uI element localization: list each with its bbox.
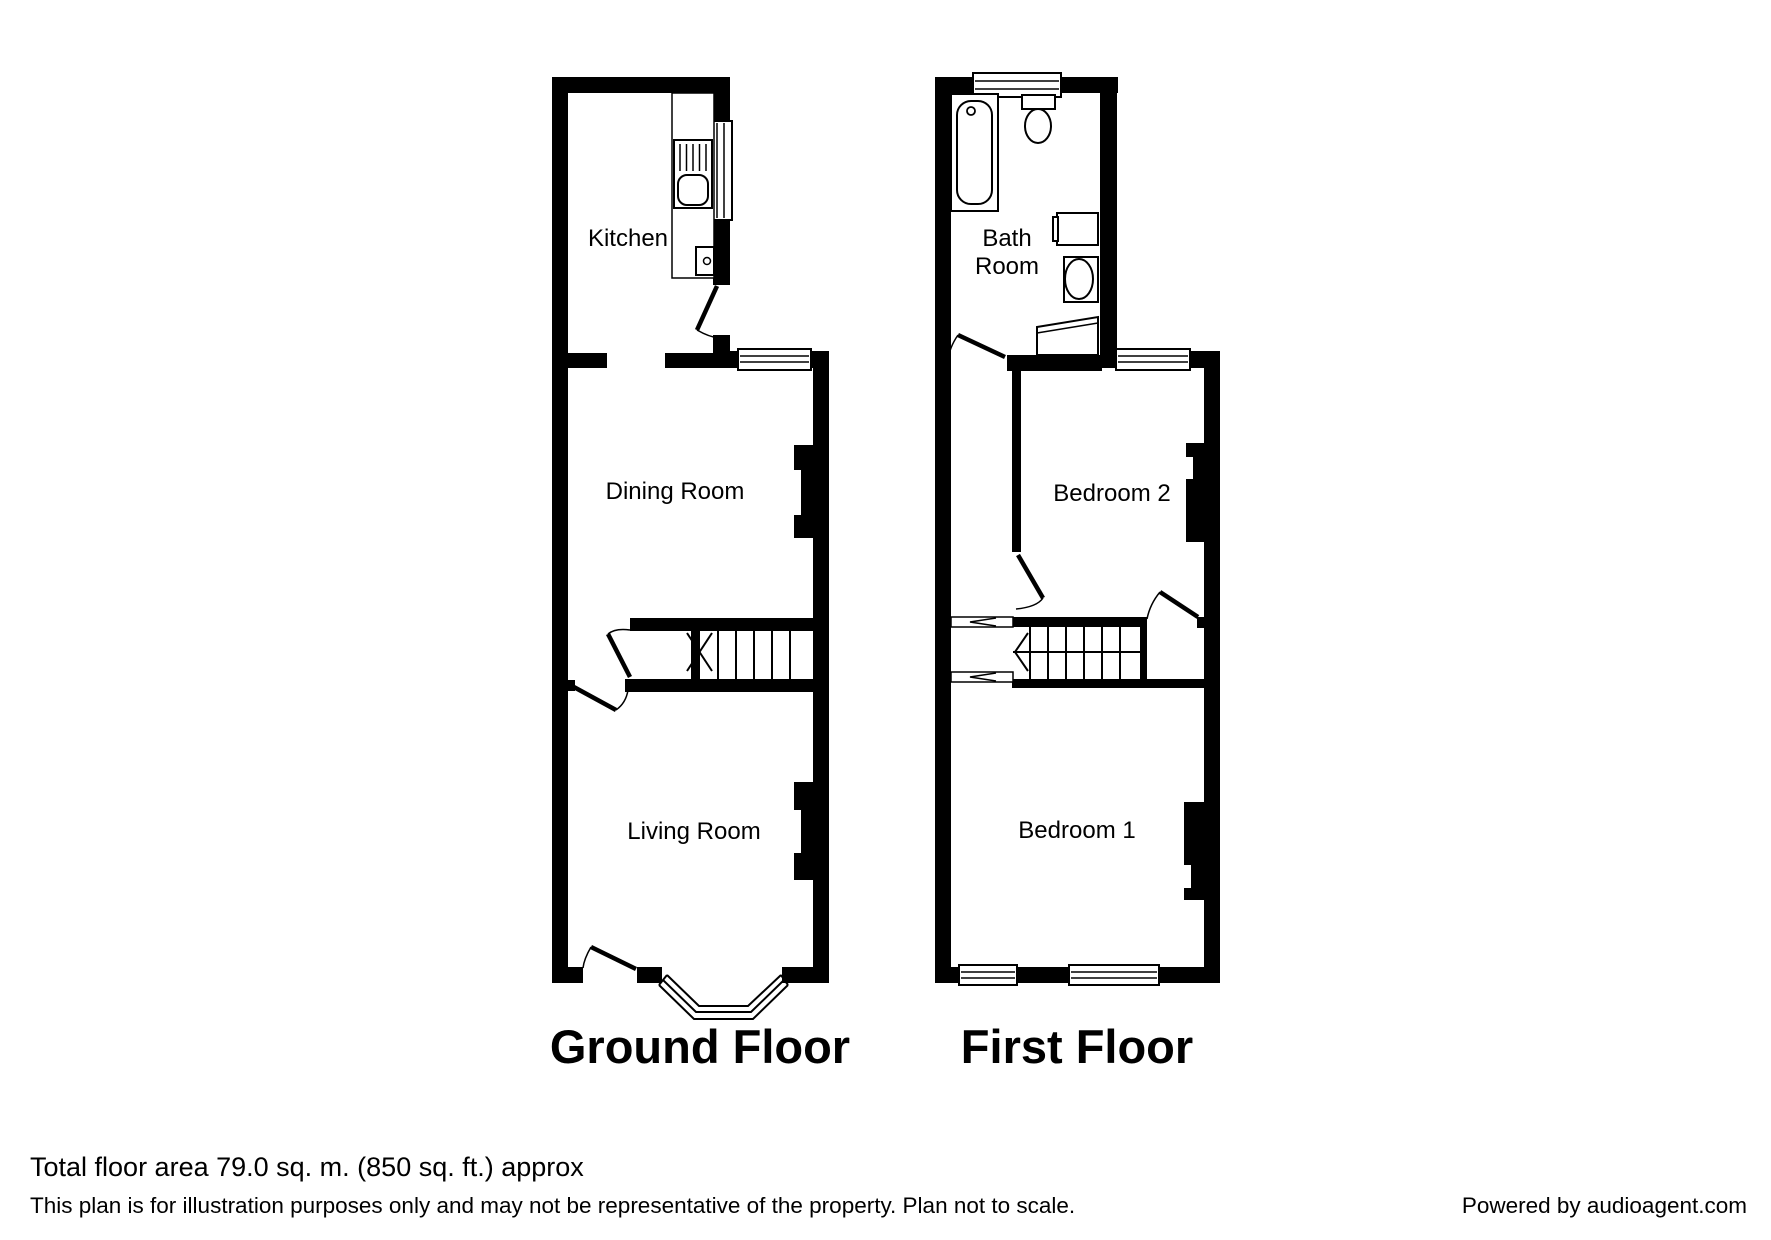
floorplan-drawing: Kitchen Dining Room Living Room Ground F… <box>0 0 1771 1240</box>
living-chimney-breast <box>794 782 813 880</box>
airing-cupboard <box>1037 317 1098 355</box>
room-label-bathroom-line2: Room <box>975 253 1039 280</box>
first-floor-title: First Floor <box>961 1020 1193 1073</box>
kitchen-door <box>697 286 719 338</box>
bedroom2-stair-door <box>1147 592 1198 619</box>
front-door <box>583 947 636 969</box>
room-label-dining: Dining Room <box>606 478 745 505</box>
ground-floor-plan: Kitchen Dining Room Living Room Ground F… <box>550 77 850 1073</box>
bedroom1-window-right <box>1069 965 1159 985</box>
toilet <box>1022 95 1055 143</box>
room-label-living: Living Room <box>627 818 760 845</box>
bedroom2-landing-door <box>1016 555 1043 609</box>
first-floor-plan: Bath Room Bedroom 2 Bedroom 1 First Floo… <box>935 73 1220 1073</box>
dining-window <box>738 349 811 370</box>
staircase-ground <box>687 631 790 679</box>
landing-stair-arrow-lower <box>951 672 1013 682</box>
credit-text: Powered by audioagent.com <box>1462 1193 1747 1219</box>
ground-floor-title: Ground Floor <box>550 1020 850 1073</box>
bedroom2-window <box>1116 349 1190 370</box>
bedroom1-window-left <box>959 965 1017 985</box>
disclaimer-text: This plan is for illustration purposes o… <box>30 1193 1075 1219</box>
staircase-first <box>1013 627 1140 679</box>
bedroom2-chimney-breast <box>1186 443 1204 542</box>
room-label-bedroom1: Bedroom 1 <box>1018 817 1135 844</box>
vanity-unit <box>1053 213 1098 245</box>
wash-basin <box>1064 257 1098 302</box>
dining-hall-door <box>608 630 630 678</box>
dining-chimney-breast <box>794 445 813 538</box>
room-label-bathroom-line1: Bath <box>982 225 1031 252</box>
room-label-kitchen: Kitchen <box>588 225 668 252</box>
kitchen-sink <box>678 175 708 205</box>
kitchen-counter <box>672 93 714 278</box>
bathroom-door <box>948 335 1005 361</box>
bay-window <box>659 975 788 1019</box>
bathtub <box>951 94 998 211</box>
bedroom1-chimney-breast <box>1184 802 1204 900</box>
landing-stair-arrow-upper <box>951 617 1013 627</box>
floorplan-page: Kitchen Dining Room Living Room Ground F… <box>0 0 1771 1240</box>
room-label-bedroom2: Bedroom 2 <box>1053 480 1170 507</box>
living-room-door <box>572 686 628 710</box>
total-area-text: Total floor area 79.0 sq. m. (850 sq. ft… <box>30 1152 584 1183</box>
